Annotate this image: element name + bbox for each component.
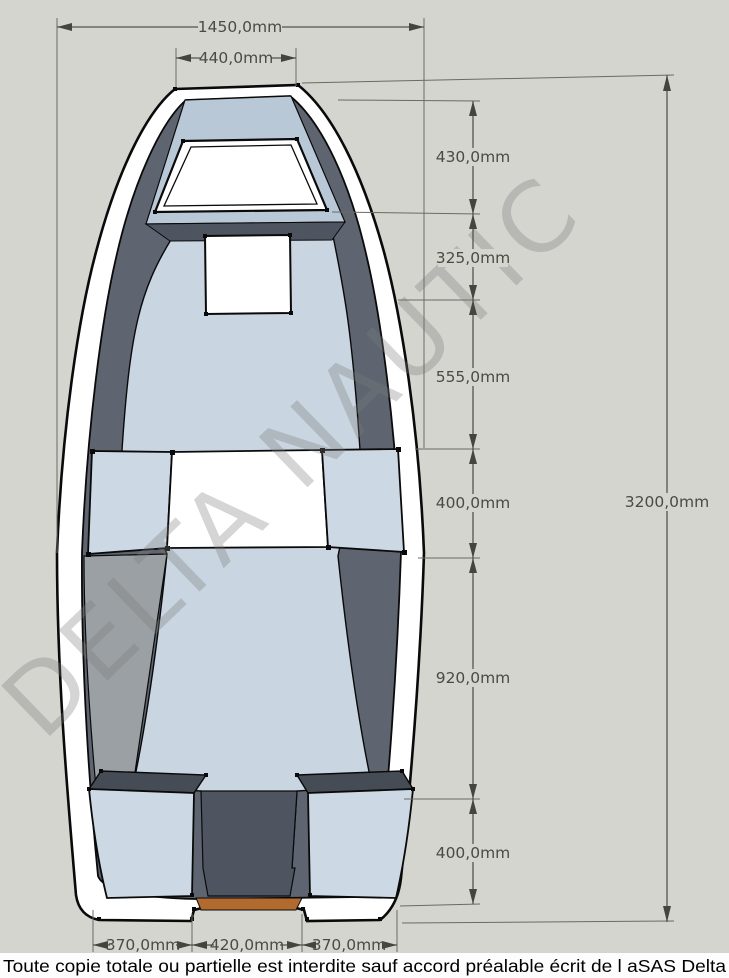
dim-length-overall: 3200,0mm — [625, 493, 709, 511]
dim-right-5: 400,0mm — [436, 844, 511, 862]
dim-bottom-1: 420,0mm — [210, 936, 285, 954]
dim-right-2: 555,0mm — [436, 368, 511, 386]
stern-bench-port — [89, 789, 194, 898]
dim-right-4: 920,0mm — [436, 669, 511, 687]
bow-hatch — [155, 139, 327, 212]
plan-canvas: DELTA NAUTIC — [0, 0, 729, 978]
dim-bottom-2: 370,0mm — [312, 936, 387, 954]
footer: Toute copie totale ou partielle est inte… — [0, 953, 729, 978]
footer-caption: Toute copie totale ou partielle est inte… — [3, 956, 726, 976]
transom-strip — [196, 898, 302, 910]
dim-bottom-0: 370,0mm — [106, 936, 181, 954]
stern-well — [201, 791, 297, 896]
floor-hatch — [205, 235, 291, 314]
boat-plan-drawing: DELTA NAUTIC — [0, 0, 729, 978]
dim-width-bow: 440,0mm — [199, 49, 274, 67]
dim-right-0: 430,0mm — [436, 148, 511, 166]
dim-right-3: 400,0mm — [436, 494, 511, 512]
stern-bench-starboard — [308, 789, 413, 898]
dim-right-1: 325,0mm — [436, 249, 511, 267]
dim-width-overall: 1450,0mm — [198, 18, 282, 36]
